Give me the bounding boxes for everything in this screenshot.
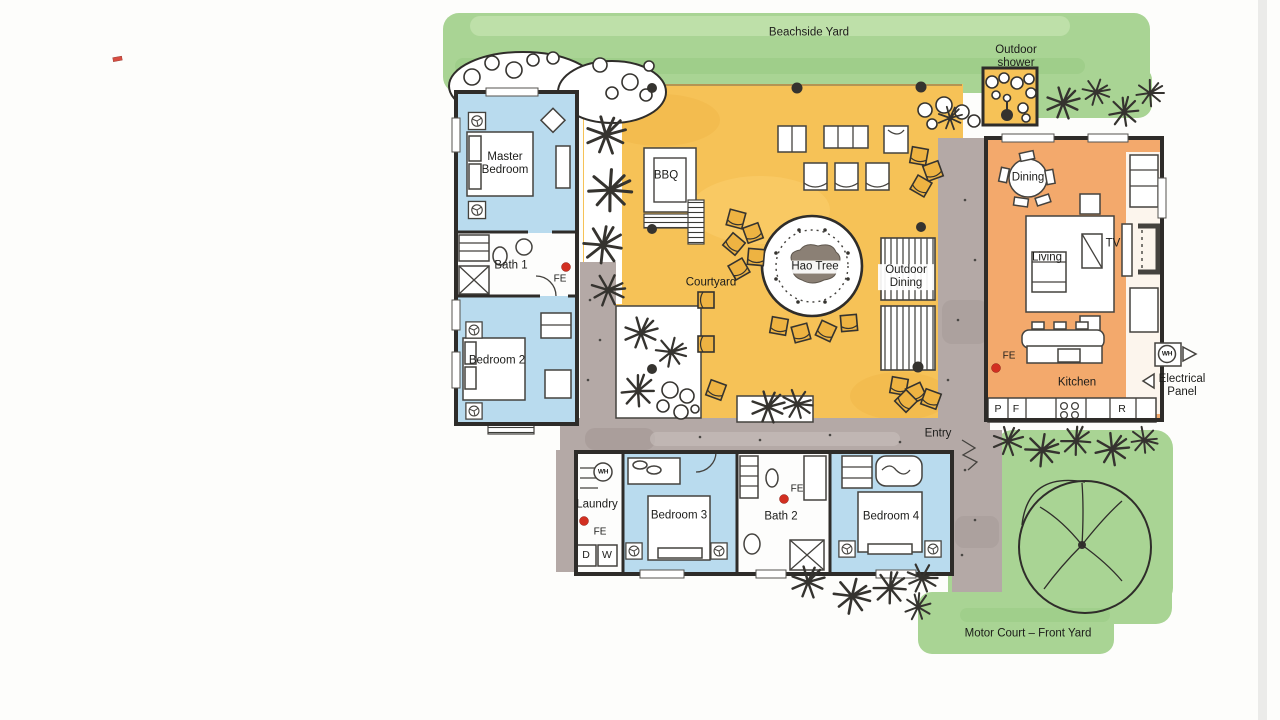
label-fe-kitchen: FE (1003, 350, 1016, 361)
label-bbq: BBQ (654, 170, 678, 183)
label-wh-kitchen: WH (1162, 350, 1172, 357)
label-bedroom-3: Bedroom 3 (651, 510, 707, 523)
label-motor-court: Motor Court – Front Yard (965, 628, 1092, 641)
label-appliance-r: R (1118, 404, 1126, 416)
label-fe-laundry: FE (594, 526, 607, 537)
label-dining: Dining (1012, 172, 1045, 185)
label-appliance-p: P (994, 404, 1001, 416)
label-hao-tree: Hao Tree (789, 261, 840, 274)
label-beachside-yard: Beachside Yard (769, 27, 849, 40)
label-master-bedroom: Master Bedroom (474, 151, 536, 177)
label-wh-laundry: WH (598, 468, 608, 475)
label-bath-1: Bath 1 (494, 260, 527, 273)
label-laundry: Laundry (576, 499, 618, 512)
label-kitchen: Kitchen (1058, 377, 1096, 390)
label-appliance-f: F (1013, 404, 1019, 416)
label-bath-2: Bath 2 (764, 511, 797, 524)
label-fe-master: FE (554, 273, 567, 284)
label-entry: Entry (925, 428, 952, 441)
label-bedroom-2: Bedroom 2 (469, 355, 525, 368)
label-outdoor-shower: Outdoor shower (989, 44, 1043, 70)
label-bedroom-4: Bedroom 4 (863, 511, 919, 524)
label-tv: TV (1106, 238, 1121, 251)
label-fe-bath2: FE (791, 483, 804, 494)
label-appliance-d: D (582, 550, 590, 562)
label-electrical-panel: Electrical Panel (1153, 373, 1211, 399)
floor-plan-page: Beachside Yard Outdoor shower Master Bed… (0, 0, 1280, 720)
label-layer: Beachside Yard Outdoor shower Master Bed… (0, 0, 1280, 720)
label-courtyard: Courtyard (686, 277, 737, 290)
label-outdoor-dining: Outdoor Dining (878, 264, 934, 290)
label-appliance-w: W (602, 550, 612, 562)
label-living: Living (1032, 252, 1062, 265)
